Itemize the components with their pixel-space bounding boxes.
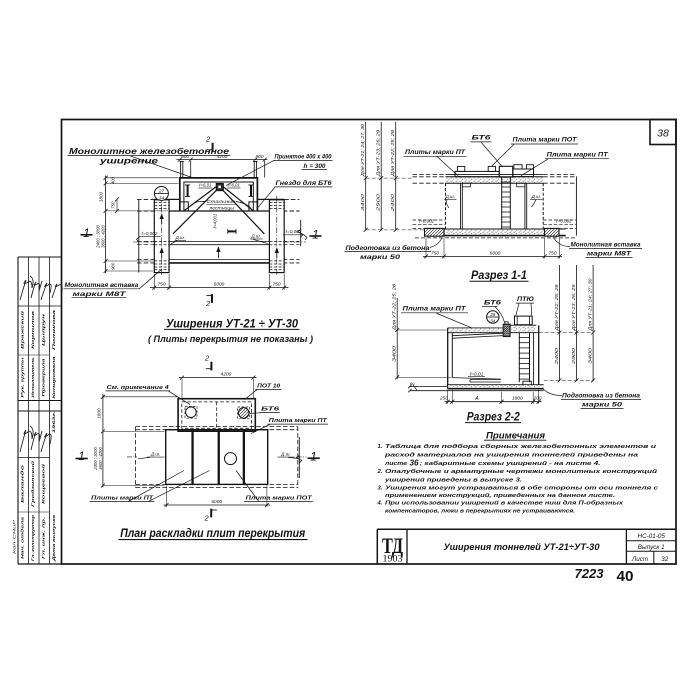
svg-text:36: 36 <box>410 458 420 467</box>
svg-text:БТ6: БТ6 <box>484 299 501 306</box>
svg-text:Вражский: Вражский <box>21 309 25 349</box>
svg-text:Гл. инж. пр.: Гл. инж. пр. <box>41 517 45 559</box>
svg-text:ℓ=0,002: ℓ=0,002 <box>418 218 435 223</box>
svg-text:БТ6: БТ6 <box>261 407 281 413</box>
svg-text:Опалубочные и арматурные че: Опалубочные и арматурные чертежи монолит… <box>385 468 658 475</box>
svg-text:БТ6: БТ6 <box>472 135 492 142</box>
svg-text:Плиты марки ПТ: Плиты марки ПТ <box>91 496 154 502</box>
svg-text:ПТЮ: ПТЮ <box>517 296 534 303</box>
svg-text:Таблица для подбора сборных: Таблица для подбора сборных железобетонн… <box>385 443 657 450</box>
svg-text:3400: 3400 <box>588 347 593 364</box>
svg-text:40: 40 <box>617 568 634 585</box>
svg-text:200: 200 <box>532 396 541 402</box>
svg-text:4.: 4. <box>377 501 383 507</box>
svg-text:ℓ=0,002: ℓ=0,002 <box>555 218 572 223</box>
svg-text:марки 50: марки 50 <box>582 402 622 409</box>
svg-text:Стальные: Стальные <box>207 199 236 204</box>
svg-text:Монолитная вставка: Монолитная вставка <box>571 242 641 249</box>
svg-text:Д.ш.: Д.ш. <box>445 194 455 199</box>
svg-text:Кощеевой: Кощеевой <box>41 462 45 504</box>
svg-text:2.: 2. <box>377 469 383 475</box>
svg-text:400: 400 <box>110 177 115 185</box>
svg-text:34: 34 <box>159 195 165 201</box>
svg-text:900: 900 <box>110 262 115 270</box>
svg-text:ℓ=0,002: ℓ=0,002 <box>141 231 158 236</box>
svg-text:Принятое 400 х 400: Принятое 400 х 400 <box>275 154 332 161</box>
svg-text:Гл. конструктор: Гл. конструктор <box>31 514 35 561</box>
svg-text:; габаритные схемы уширений: ; габаритные схемы уширений - на листе 4… <box>420 460 601 467</box>
svg-text:Д.ш.: Д.ш. <box>280 452 290 457</box>
svg-text:Плита марки ПТ: Плита марки ПТ <box>269 418 328 424</box>
svg-text:1: 1 <box>83 226 90 240</box>
svg-text:Разрез 1-1: Разрез 1-1 <box>471 268 527 282</box>
svg-text:А: А <box>474 396 479 402</box>
svg-text:Полякова: Полякова <box>52 310 56 350</box>
svg-text:Д.ш.: Д.ш. <box>531 194 541 199</box>
svg-text:( Плиты перекрытия не показ: ( Плиты перекрытия не показаны ) <box>148 334 313 344</box>
svg-text:Копировала: Копировала <box>52 357 56 399</box>
svg-text:Примечания: Примечания <box>486 430 545 441</box>
svg-text:2400: 2400 <box>390 193 395 213</box>
svg-text:Исполнитель: Исполнитель <box>31 358 35 398</box>
svg-text:6000: 6000 <box>211 499 222 505</box>
svg-text:Гнездо для БТ6: Гнездо для БТ6 <box>276 179 332 187</box>
svg-text:750: 750 <box>431 250 439 256</box>
svg-text:250: 250 <box>439 396 448 402</box>
svg-text:3600 ; 4200: 3600 ; 4200 <box>98 447 103 470</box>
svg-text:Цыпрун: Цыпрун <box>41 312 45 346</box>
svg-text:Лист: Лист <box>631 556 648 563</box>
svg-text:Выпуск 1: Выпуск 1 <box>638 544 665 551</box>
svg-text:1: 1 <box>312 227 319 241</box>
svg-text:Для УТ-22; 25; 28: Для УТ-22; 25; 28 <box>554 284 559 332</box>
svg-text:Плиты марки ПТ: Плиты марки ПТ <box>405 149 466 156</box>
svg-text:6000: 6000 <box>214 282 225 288</box>
svg-text:1800: 1800 <box>512 396 523 402</box>
svg-text:марки 50: марки 50 <box>360 254 400 261</box>
svg-text:Монолитное железобетонное: Монолитное железобетонное <box>69 146 230 156</box>
svg-text:Нач. отдела: Нач. отдела <box>21 517 25 559</box>
svg-text:ℓ=0,01: ℓ=0,01 <box>469 371 484 377</box>
svg-text:ℓ=0,002: ℓ=0,002 <box>285 229 302 234</box>
svg-text:марки М8Т: марки М8Т <box>73 291 127 298</box>
svg-text:3400: 3400 <box>360 193 365 211</box>
svg-text:2: 2 <box>205 135 211 144</box>
svg-text:применением конструкций, при: применением конструкций, приведенных на … <box>385 492 615 499</box>
svg-text:Для УТ-23; 26; 29: Для УТ-23; 26; 29 <box>571 284 576 332</box>
svg-text:1800: 1800 <box>99 191 104 202</box>
svg-text:34: 34 <box>490 319 496 324</box>
svg-text:НС-01-05: НС-01-05 <box>638 533 666 540</box>
svg-text:750: 750 <box>272 282 280 288</box>
svg-text:ПОТ 10: ПОТ 10 <box>257 383 280 389</box>
svg-text:Для УТ-22; 25; 28: Для УТ-22; 25; 28 <box>392 283 397 331</box>
svg-text:Д.ш.: Д.ш. <box>250 234 260 239</box>
svg-text:32: 32 <box>661 556 669 563</box>
svg-text:Рук. группы: Рук. группы <box>21 356 25 398</box>
svg-text:2400: 2400 <box>554 347 559 366</box>
svg-text:2: 2 <box>204 513 210 522</box>
svg-text:ℓ=6,01: ℓ=6,01 <box>227 183 241 188</box>
svg-text:Баландо: Баландо <box>21 463 25 503</box>
svg-text:38: 38 <box>657 128 669 140</box>
svg-text:уширение: уширение <box>99 156 159 165</box>
svg-text:1903: 1903 <box>383 554 404 564</box>
svg-text:2: 2 <box>205 299 211 308</box>
svg-text:Плита марки ПОТ: Плита марки ПОТ <box>246 496 313 502</box>
svg-text:750: 750 <box>548 250 556 256</box>
svg-text:750: 750 <box>110 201 115 209</box>
svg-text:6000: 6000 <box>490 250 501 256</box>
svg-text:3600 ; 4200: 3600 ; 4200 <box>101 225 106 248</box>
svg-text:1: 1 <box>310 450 317 464</box>
svg-text:Дата выпуска: Дата выпуска <box>52 515 56 563</box>
svg-text:План раскладки плит перекры: План раскладки плит перекрытия <box>120 528 305 540</box>
svg-text:При использовании уширений: При использовании уширений в качестве ни… <box>385 500 624 507</box>
svg-text:марки М8Т: марки М8Т <box>587 251 632 258</box>
svg-text:Разрез 2-2: Разрез 2-2 <box>467 409 520 423</box>
svg-text:2: 2 <box>204 354 210 363</box>
svg-text:ℓ=4,001: ℓ=4,001 <box>213 213 218 229</box>
svg-text:Для УТ-21; 24; 27; 30: Для УТ-21; 24; 27; 30 <box>360 123 365 177</box>
svg-text:Плита марки ПТ: Плита марки ПТ <box>403 306 467 313</box>
svg-text:Подготовка из бетона: Подготовка из бетона <box>346 244 430 252</box>
svg-text:3.: 3. <box>378 485 383 491</box>
svg-text:Плита марки ПТ: Плита марки ПТ <box>547 151 609 158</box>
svg-text:4200: 4200 <box>221 372 232 378</box>
svg-text:Уширения могут устраиваться: Уширения могут устраиваться в обе сторон… <box>385 484 659 491</box>
svg-text:28: 28 <box>489 312 496 317</box>
svg-text:Корнилов: Корнилов <box>31 309 35 349</box>
svg-text:Д.ш.: Д.ш. <box>150 452 160 457</box>
svg-text:1: 1 <box>78 449 85 463</box>
svg-text:Коп-СНиР: Коп-СНиР <box>13 518 17 554</box>
svg-text:2900: 2900 <box>571 347 576 366</box>
svg-text:h = 300: h = 300 <box>304 163 326 170</box>
svg-text:компенсаторов, люки в перек: компенсаторов, люки в перекрытиях не уст… <box>385 508 575 514</box>
svg-text:750: 750 <box>157 282 165 288</box>
svg-text:Монолитная вставка: Монолитная вставка <box>65 282 139 289</box>
svg-text:1800: 1800 <box>97 408 102 419</box>
svg-text:Для УТ-22; 25; 28: Для УТ-22; 25; 28 <box>390 129 395 177</box>
svg-text:7223: 7223 <box>575 567 604 581</box>
svg-text:1.: 1. <box>378 444 383 450</box>
svg-text:3400: 3400 <box>392 345 397 362</box>
svg-text:27: 27 <box>158 188 165 194</box>
svg-text:Подготовка из бетона: Подготовка из бетона <box>562 392 640 400</box>
svg-text:См. примечание 4: См. примечание 4 <box>107 385 169 391</box>
svg-text:листе: листе <box>384 461 408 467</box>
svg-text:Уширения тоннелей УТ-21÷УТ-3: Уширения тоннелей УТ-21÷УТ-30 <box>444 542 601 553</box>
svg-text:ℓ=6,01: ℓ=6,01 <box>198 183 212 188</box>
svg-text:Плита марки ПОТ: Плита марки ПОТ <box>513 137 578 144</box>
svg-text:2900: 2900 <box>376 193 381 213</box>
svg-text:Проверила: Проверила <box>41 359 45 397</box>
svg-text:лестницы: лестницы <box>208 205 234 210</box>
svg-text:Для УТ-23; 26; 29: Для УТ-23; 26; 29 <box>376 129 381 177</box>
svg-text:Для УТ-21; 24; 27; 30: Для УТ-21; 24; 27; 30 <box>588 278 593 332</box>
svg-text:Д.ш.: Д.ш. <box>175 235 185 240</box>
svg-text:1963г.: 1963г. <box>52 411 56 433</box>
svg-text:Уширения УТ-21 ÷ УТ-30: Уширения УТ-21 ÷ УТ-30 <box>166 319 299 331</box>
svg-text:Гродзинский: Гродзинский <box>31 460 35 507</box>
svg-text:уширений приведены в выпуск: уширений приведены в выпуске 3. <box>384 476 523 483</box>
svg-text:расход материалов на уширен: расход материалов на уширения тоннелей п… <box>384 451 639 458</box>
svg-text:800: 800 <box>255 154 263 160</box>
